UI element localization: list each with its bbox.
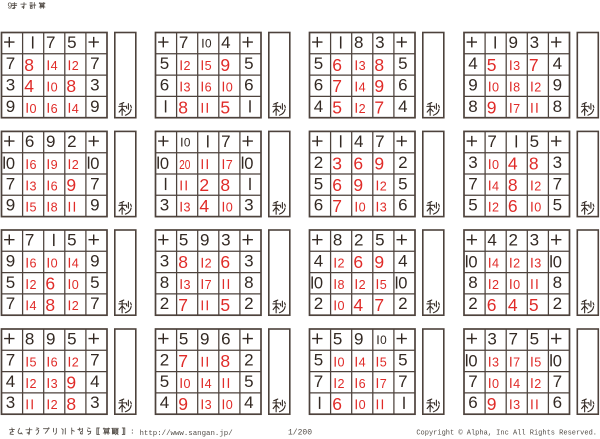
svg-text:7: 7 [508,329,517,348]
svg-text:7: 7 [90,54,99,73]
svg-text:0: 0 [492,158,499,172]
svg-text:7: 7 [205,278,212,292]
svg-text:6: 6 [314,196,323,215]
svg-text:5: 5 [333,329,342,348]
svg-text:2: 2 [338,257,345,271]
svg-text:2: 2 [492,201,499,215]
svg-text:5: 5 [67,329,76,348]
svg-text:0: 0 [184,377,191,391]
svg-text:7: 7 [380,377,387,391]
svg-text:3: 3 [184,278,191,292]
svg-text:6: 6 [359,377,366,391]
svg-text:0: 0 [338,299,345,313]
svg-text:6: 6 [332,394,342,414]
svg-text:20: 20 [179,157,190,172]
svg-text:9: 9 [90,252,99,271]
svg-text:4: 4 [51,59,58,73]
svg-text:4: 4 [72,257,79,271]
svg-text:3: 3 [221,230,230,249]
svg-text:4: 4 [30,299,37,313]
svg-text:3: 3 [492,356,499,370]
svg-text:2: 2 [30,377,37,391]
svg-text:5: 5 [529,295,539,315]
svg-text:2: 2 [314,294,323,313]
svg-text:6: 6 [398,76,407,95]
svg-text:9: 9 [508,33,517,52]
svg-text:7: 7 [332,196,342,216]
svg-text:3: 3 [553,153,562,172]
svg-text:3: 3 [468,153,477,172]
svg-text:9: 9 [354,329,363,348]
svg-text:8: 8 [178,97,188,117]
svg-text:7: 7 [468,174,477,193]
svg-text:5: 5 [380,356,387,370]
svg-text:7: 7 [25,230,34,249]
svg-text:7: 7 [553,174,562,193]
svg-text:5: 5 [179,329,188,348]
svg-text:4: 4 [468,54,477,73]
svg-text:2: 2 [72,356,79,370]
svg-text:5: 5 [530,329,539,348]
svg-text:9: 9 [374,154,384,174]
svg-text:5: 5 [314,351,323,370]
svg-text:2: 2 [51,398,58,412]
svg-text:3: 3 [160,196,169,215]
svg-text:5: 5 [160,372,169,391]
svg-text:4: 4 [553,54,562,73]
svg-text:3: 3 [244,196,253,215]
svg-text:7: 7 [6,351,15,370]
svg-text:7: 7 [374,97,384,117]
svg-text:7: 7 [90,351,99,370]
svg-text:2: 2 [244,351,253,370]
svg-text:6: 6 [220,252,230,272]
svg-text:5: 5 [398,174,407,193]
svg-text:3: 3 [513,59,520,73]
svg-text:0: 0 [226,201,233,215]
svg-text:7: 7 [226,158,233,172]
svg-text:6: 6 [332,55,342,75]
svg-text:7: 7 [398,372,407,391]
svg-text:2: 2 [338,377,345,391]
svg-text:8: 8 [468,273,477,292]
svg-text:2: 2 [199,175,209,195]
svg-text:7: 7 [6,294,15,313]
svg-text:5: 5 [205,59,212,73]
svg-text:5: 5 [220,97,230,117]
svg-text:9: 9 [46,132,55,151]
svg-text:7: 7 [553,372,562,391]
svg-text:7: 7 [375,132,384,151]
svg-text:0: 0 [492,81,499,95]
svg-text:0: 0 [90,155,99,173]
svg-text:0: 0 [226,81,233,95]
svg-text:3: 3 [359,59,366,73]
svg-text:9: 9 [200,329,209,348]
svg-text:4: 4 [314,97,323,116]
svg-text:6: 6 [398,196,407,215]
svg-text:5: 5 [220,295,230,315]
svg-text:0: 0 [380,333,387,347]
svg-text:8: 8 [25,329,34,348]
svg-text:5: 5 [67,33,76,52]
svg-text:3: 3 [90,393,99,412]
svg-text:2: 2 [205,257,212,271]
svg-text:7: 7 [179,33,188,52]
svg-text:6: 6 [51,179,58,193]
svg-text:6: 6 [51,102,58,116]
svg-text:4: 4 [199,196,209,216]
svg-text:5: 5 [553,196,562,215]
svg-text:7: 7 [332,76,342,96]
svg-text:5: 5 [244,54,253,73]
svg-text:4: 4 [398,252,407,271]
svg-text:9: 9 [6,97,15,116]
svg-text:9: 9 [90,97,99,116]
svg-text:2: 2 [398,294,407,313]
svg-text:8: 8 [66,76,76,96]
svg-text:0: 0 [72,278,79,292]
svg-text:0: 0 [160,155,169,173]
svg-text:4: 4 [513,377,520,391]
svg-text:3: 3 [244,252,253,271]
svg-text:4: 4 [359,356,366,370]
svg-text:6: 6 [244,76,253,95]
svg-text:6: 6 [30,257,37,271]
svg-text:7: 7 [6,54,15,73]
svg-text:2: 2 [534,377,541,391]
svg-text:0: 0 [51,81,58,95]
svg-text:8: 8 [529,154,539,174]
svg-text:0: 0 [244,155,253,173]
svg-text:4: 4 [205,377,212,391]
svg-text:5: 5 [30,201,37,215]
svg-text:4: 4 [72,102,79,116]
svg-text:9: 9 [46,329,55,348]
svg-text:7: 7 [221,132,230,151]
svg-text:0: 0 [359,398,366,412]
svg-text:3: 3 [184,201,191,215]
svg-text:3: 3 [332,154,342,174]
svg-text:6: 6 [353,154,363,174]
svg-text:8: 8 [354,33,363,52]
svg-text:5: 5 [30,356,37,370]
svg-text:7: 7 [374,295,384,315]
svg-text:4: 4 [24,76,34,96]
svg-text:7: 7 [513,102,520,116]
svg-text:8: 8 [513,81,520,95]
svg-text:6: 6 [553,393,562,412]
svg-text:4: 4 [398,97,407,116]
svg-text:5: 5 [160,54,169,73]
svg-text:0: 0 [338,356,345,370]
svg-text:0: 0 [226,398,233,412]
svg-text:2: 2 [72,299,79,313]
svg-text:0: 0 [205,37,212,51]
svg-text:5: 5 [179,230,188,249]
svg-text:9: 9 [90,196,99,215]
svg-text:4: 4 [221,33,230,52]
svg-text:2: 2 [534,81,541,95]
svg-text:0: 0 [359,201,366,215]
svg-text:http://www.sangan.jp/: http://www.sangan.jp/ [140,430,234,438]
svg-text:5: 5 [398,351,407,370]
svg-text:8: 8 [508,175,518,195]
svg-text:6: 6 [51,356,58,370]
svg-text:0: 0 [51,257,58,271]
svg-text:8: 8 [51,201,58,215]
svg-text:7: 7 [178,351,188,371]
svg-text:8: 8 [468,97,477,116]
svg-text:0: 0 [398,275,407,293]
svg-text:8: 8 [66,394,76,414]
svg-text:5: 5 [314,54,323,73]
svg-text:Copyright © Alpha, Inc All Rig: Copyright © Alpha, Inc All Rights Reserv… [416,429,597,438]
svg-text:8: 8 [24,55,34,75]
svg-text:3: 3 [487,329,496,348]
svg-text:3: 3 [160,252,169,271]
svg-text:6: 6 [468,393,477,412]
svg-text:0: 0 [492,377,499,391]
svg-text:8: 8 [244,273,253,292]
svg-text:2: 2 [508,230,517,249]
svg-text:5: 5 [530,132,539,151]
svg-text:3: 3 [184,81,191,95]
svg-text:4: 4 [244,393,253,412]
svg-text:4: 4 [492,257,499,271]
svg-text:7: 7 [6,174,15,193]
svg-text:6: 6 [353,252,363,272]
svg-text:2: 2 [184,59,191,73]
svg-text:8: 8 [220,351,230,371]
svg-text:4: 4 [90,372,99,391]
svg-text:1/200: 1/200 [288,429,312,438]
svg-text:9: 9 [200,230,209,249]
svg-text:0: 0 [513,278,520,292]
svg-text:5: 5 [67,230,76,249]
svg-text:2: 2 [553,294,562,313]
svg-text:5: 5 [534,356,541,370]
svg-text:6: 6 [314,76,323,95]
svg-text:0: 0 [184,136,191,150]
svg-text:8: 8 [553,97,562,116]
svg-text:9: 9 [6,196,15,215]
svg-text:4: 4 [6,372,15,391]
svg-text:8: 8 [553,273,562,292]
svg-text:3: 3 [51,377,58,391]
svg-text:3: 3 [380,201,387,215]
svg-text:4: 4 [160,393,169,412]
svg-text:4: 4 [359,81,366,95]
svg-text:4: 4 [508,154,518,174]
svg-text:0: 0 [534,201,541,215]
svg-text:2: 2 [160,294,169,313]
svg-text:3: 3 [6,76,15,95]
svg-text:0: 0 [553,352,562,370]
svg-text:3: 3 [375,33,384,52]
svg-text:4: 4 [508,295,518,315]
svg-text:9: 9 [374,76,384,96]
svg-text:2: 2 [72,158,79,172]
svg-text:3: 3 [534,257,541,271]
svg-text:5: 5 [244,372,253,391]
svg-text:7: 7 [529,55,539,75]
svg-text:7: 7 [46,33,55,52]
svg-text:4: 4 [314,252,323,271]
svg-text:2: 2 [30,278,37,292]
svg-text:6: 6 [332,175,342,195]
svg-text:9: 9 [220,55,230,75]
svg-text:0: 0 [30,102,37,116]
svg-text:2: 2 [468,294,477,313]
svg-text:9: 9 [51,158,58,172]
svg-text:3: 3 [6,393,15,412]
svg-text:0: 0 [553,253,562,271]
svg-text:4: 4 [487,230,496,249]
svg-text:9: 9 [66,373,76,393]
svg-text:2: 2 [354,230,363,249]
svg-text:3: 3 [90,76,99,95]
svg-text:6: 6 [160,76,169,95]
svg-text:7: 7 [178,295,188,315]
svg-text:0: 0 [468,352,477,370]
svg-text:0: 0 [468,253,477,271]
svg-text:2: 2 [398,153,407,172]
svg-text:5: 5 [6,273,15,292]
svg-text:2: 2 [534,179,541,193]
svg-text:2: 2 [359,102,366,116]
svg-text:5: 5 [375,230,384,249]
svg-text:3: 3 [30,179,37,193]
svg-text:5: 5 [468,196,477,215]
svg-text:2: 2 [380,179,387,193]
svg-text:2: 2 [67,132,76,151]
svg-text:9: 9 [468,76,477,95]
svg-text:2: 2 [359,278,366,292]
svg-text:5: 5 [398,54,407,73]
svg-text:6: 6 [45,274,55,294]
svg-text:2: 2 [513,257,520,271]
svg-text:3: 3 [513,398,520,412]
svg-text:9: 9 [374,252,384,272]
svg-text:4: 4 [353,295,363,315]
svg-text:7: 7 [90,294,99,313]
svg-text:7: 7 [90,174,99,193]
svg-text:8: 8 [160,273,169,292]
svg-text:0: 0 [6,155,15,173]
svg-text:5: 5 [314,174,323,193]
svg-text:9: 9 [6,252,15,271]
svg-text:5: 5 [487,55,497,75]
svg-text:2: 2 [492,278,499,292]
svg-text:6: 6 [25,132,34,151]
svg-text:9: 9 [487,97,497,117]
svg-text:7: 7 [513,356,520,370]
svg-text:6: 6 [30,158,37,172]
svg-text:4: 4 [492,179,499,193]
svg-text:4: 4 [354,132,363,151]
svg-text:7: 7 [468,372,477,391]
svg-text:7: 7 [314,372,323,391]
svg-text:5: 5 [380,278,387,292]
svg-text:3: 3 [205,398,212,412]
svg-text:3: 3 [530,33,539,52]
svg-text:8: 8 [220,175,230,195]
svg-text:5: 5 [90,273,99,292]
svg-text:2: 2 [160,351,169,370]
svg-text:9: 9 [178,394,188,414]
svg-text:8: 8 [338,278,345,292]
svg-text:6: 6 [487,295,497,315]
svg-text:6: 6 [508,196,518,216]
svg-text:8: 8 [374,55,384,75]
svg-text:7: 7 [487,132,496,151]
svg-text:9: 9 [353,175,363,195]
svg-text:8: 8 [45,295,55,315]
svg-text:0: 0 [314,275,323,293]
svg-text:2: 2 [314,153,323,172]
svg-text:9: 9 [487,394,497,414]
svg-text:8: 8 [333,230,342,249]
svg-text:6: 6 [205,81,212,95]
svg-text:2: 2 [244,294,253,313]
svg-text:9: 9 [66,175,76,195]
svg-text:9: 9 [553,76,562,95]
svg-text:6: 6 [221,329,230,348]
svg-text:8: 8 [178,252,188,272]
svg-text:3: 3 [530,230,539,249]
svg-text:2: 2 [72,59,79,73]
svg-text:5: 5 [332,97,342,117]
